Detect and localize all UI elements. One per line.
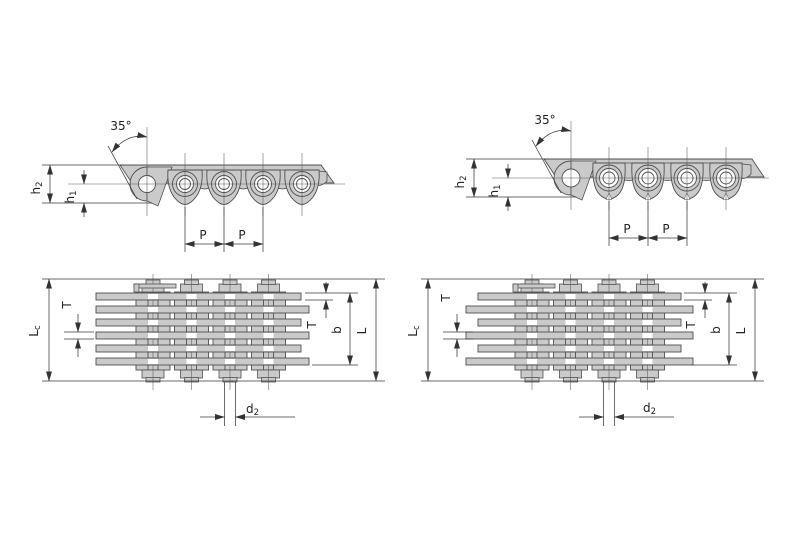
pin-lock-tab-lip xyxy=(513,284,518,292)
left-chain-side-view: 35° h2 h1 P P xyxy=(29,119,345,252)
pitch-dimension-label-1: P xyxy=(623,222,630,236)
pin-lock-tab-lip xyxy=(134,284,139,292)
link-plate-row xyxy=(96,306,309,313)
pin-lock-tab xyxy=(134,284,176,288)
plate-thickness-label-left: T xyxy=(439,294,453,303)
leaf-chain-technical-drawing: 35° h2 h1 P P 35° h2 h1 P P xyxy=(0,0,800,533)
h1-dimension-label: h1 xyxy=(487,184,503,197)
chain-link-pin xyxy=(593,147,625,210)
pitch-dimension-label-2: P xyxy=(238,228,245,242)
pin-diameter-dimension-label: d2 xyxy=(246,402,259,418)
chain-link-pin xyxy=(285,153,320,216)
chain-link-pin xyxy=(246,153,281,216)
pin-lock-tab xyxy=(513,284,555,288)
pin-length-dimension-label: L xyxy=(734,327,748,334)
pitch-dimension-label-2: P xyxy=(662,222,669,236)
link-plate-row xyxy=(466,306,693,313)
plate-thickness-label-right: T xyxy=(684,321,698,330)
chain-link-pin xyxy=(632,147,664,210)
link-plate-row xyxy=(466,332,693,339)
pitch-dimension-label-1: P xyxy=(199,228,206,242)
angle-dimension-label: 35° xyxy=(534,113,555,127)
pin-diameter-dimension-label: d2 xyxy=(643,401,656,417)
right-chain-side-view: 35° h2 h1 P P xyxy=(453,113,769,246)
chain-link-pin xyxy=(710,147,742,210)
pin-length-dimension-label: L xyxy=(355,327,369,334)
chain-link-pin xyxy=(207,153,242,216)
link-plate-row xyxy=(96,332,309,339)
lc-dimension-label: Lc xyxy=(27,325,43,337)
h2-dimension-label: h2 xyxy=(453,175,469,188)
lc-dimension-label: Lc xyxy=(406,325,422,337)
link-plate-row xyxy=(96,358,309,365)
angle-dimension-label: 35° xyxy=(110,119,131,133)
chain-link-pin xyxy=(671,147,703,210)
chain-link-pin xyxy=(168,153,203,216)
inner-width-dimension-label: b xyxy=(709,326,723,334)
plate-thickness-label-right: T xyxy=(305,321,319,330)
h1-dimension-label: h1 xyxy=(63,190,79,203)
link-plate-row xyxy=(466,358,693,365)
h2-dimension-label: h2 xyxy=(29,181,45,194)
inner-width-dimension-label: b xyxy=(330,326,344,334)
plate-thickness-label-left: T xyxy=(60,301,74,310)
left-chain-plan-view: Lc T T b L d2 xyxy=(27,274,385,426)
right-chain-plan-view: Lc T T b L d2 xyxy=(406,274,764,426)
